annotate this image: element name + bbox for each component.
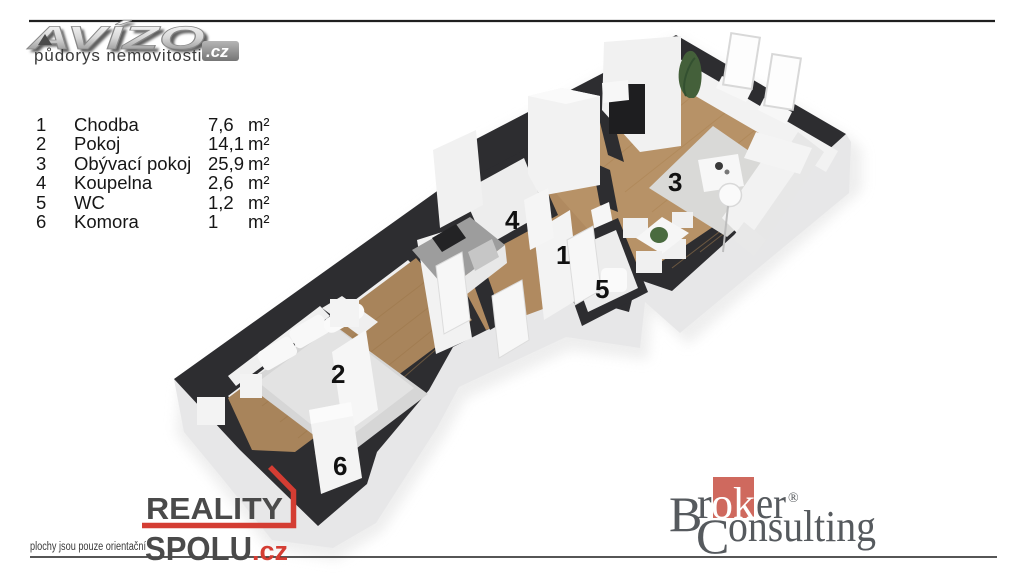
svg-text:m²: m² (248, 133, 270, 154)
svg-text:m²: m² (248, 172, 270, 193)
svg-text:1: 1 (36, 114, 46, 135)
svg-text:7,6: 7,6 (208, 114, 234, 135)
svg-text:4: 4 (36, 172, 46, 193)
svg-text:5: 5 (36, 192, 46, 213)
svg-text:6: 6 (333, 451, 347, 481)
svg-text:25,9: 25,9 (208, 153, 244, 174)
svg-text:SPOLU: SPOLU (145, 530, 252, 567)
svg-text:WC: WC (74, 192, 105, 213)
svg-text:Obývací pokoj: Obývací pokoj (74, 153, 191, 174)
svg-text:2: 2 (36, 133, 46, 154)
svg-text:Chodba: Chodba (74, 114, 140, 135)
svg-text:Koupelna: Koupelna (74, 172, 153, 193)
svg-text:3: 3 (36, 153, 46, 174)
svg-text:2,6: 2,6 (208, 172, 234, 193)
svg-text:6: 6 (36, 211, 46, 232)
svg-text:m²: m² (248, 211, 270, 232)
svg-text:.cz: .cz (252, 536, 288, 566)
svg-text:Pokoj: Pokoj (74, 133, 120, 154)
svg-text:m²: m² (248, 114, 270, 135)
svg-text:5: 5 (595, 274, 609, 304)
svg-text:onsulting: onsulting (728, 502, 876, 551)
svg-text:4: 4 (505, 205, 520, 235)
svg-text:1: 1 (208, 211, 218, 232)
svg-text:1: 1 (556, 240, 570, 270)
svg-text:REALITY: REALITY (146, 491, 283, 526)
svg-text:m²: m² (248, 192, 270, 213)
svg-text:půdorys nemovitosti: půdorys nemovitosti (34, 46, 202, 65)
svg-text:Komora: Komora (74, 211, 139, 232)
svg-text:plochy jsou pouze orientační: plochy jsou pouze orientační (30, 541, 147, 553)
svg-text:m²: m² (248, 153, 270, 174)
svg-text:2: 2 (331, 359, 345, 389)
svg-text:14,1: 14,1 (208, 133, 244, 154)
svg-text:C: C (696, 508, 729, 564)
svg-text:1,2: 1,2 (208, 192, 234, 213)
svg-text:.cz: .cz (206, 42, 229, 61)
svg-text:3: 3 (668, 167, 682, 197)
